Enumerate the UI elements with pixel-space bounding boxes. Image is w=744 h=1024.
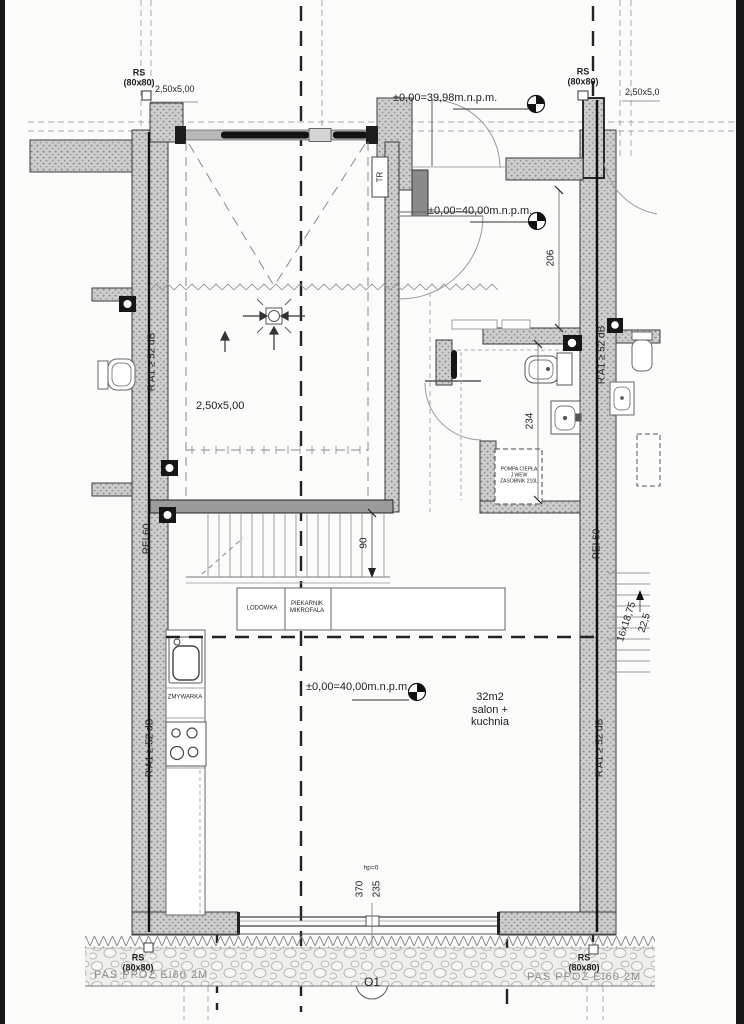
dim-stair-90: 90 xyxy=(358,537,370,548)
acoustic-wall-left-upper: R'A1 ≥ 52 dB xyxy=(146,333,158,392)
floor-drain-icon xyxy=(221,299,305,352)
garage-dim-label: 2,50x5,00 xyxy=(196,400,244,413)
fire-wall-right: REI 60 xyxy=(591,529,603,560)
fire-wall-left: REI 60 xyxy=(141,524,153,555)
acoustic-wall-left-lower: R'A1 ≥ 52 dB xyxy=(144,719,156,778)
rs-label-top-right: RS (80x80) xyxy=(567,67,598,88)
dim-bath-234: 234 xyxy=(524,413,536,430)
washbasin xyxy=(551,401,581,434)
elevation-hall: ±0,00=40,00m.n.p.m. xyxy=(428,205,532,218)
acoustic-wall-right-lower: R'A1 ≥ 52 dB xyxy=(594,719,606,778)
bathroom-door xyxy=(425,381,481,440)
towel-rail xyxy=(451,350,457,379)
entrance-door xyxy=(412,100,506,168)
garage-door xyxy=(175,126,378,144)
tr-label: TR xyxy=(375,172,384,183)
room-label-salon: 32m2 salon + kuchnia xyxy=(471,691,509,729)
oven-label: PIEKARNIK MIKROFALA xyxy=(290,601,324,615)
rs-label-top-left: RS (80x80) xyxy=(123,68,154,89)
heat-pump-label: POMPA CIEPŁA J.WEW ZASOBNIK 210L xyxy=(500,467,538,484)
hall-shelves xyxy=(452,320,530,329)
floor-plan: RS (80x80) 2,50x5,00 RS (80x80) 2,50x5,0… xyxy=(0,0,744,1024)
fire-strip-label-left: PAS PPOŻ EI60 2M xyxy=(94,969,208,982)
fridge-label: LODÓWKA xyxy=(247,606,278,613)
window-tag-o1: O1 xyxy=(364,976,380,990)
hp-zero-label: hp=0 xyxy=(364,864,379,871)
left-photo-border xyxy=(0,0,5,1024)
garage-parking-zone xyxy=(150,142,498,498)
dishwasher-label: ZMYWARKA xyxy=(168,695,202,702)
rs-marker-squares xyxy=(142,91,588,100)
module-dim-top-left: 2,50x5,00 xyxy=(155,84,195,94)
neighbor-left-toilet xyxy=(98,359,135,390)
module-dim-top-right: 2,50x5,00 xyxy=(625,87,659,97)
cooktop xyxy=(166,722,206,766)
fire-strip-label-right: PAS PPOŻ EI60 2M xyxy=(527,971,641,984)
elevation-salon: ±0,00=40,00m.n.p.m. xyxy=(306,681,410,694)
dim-window-370: 370 xyxy=(354,881,366,898)
acoustic-wall-right-upper: R'A1 ≥ 52 dB xyxy=(596,326,608,385)
toilet xyxy=(525,353,572,385)
kitchen-sink xyxy=(169,637,202,683)
party-walls xyxy=(30,98,660,935)
dim-window-235: 235 xyxy=(371,881,383,898)
elevation-entry: ±0,00=39,98m.n.p.m. xyxy=(393,92,497,105)
dim-hall-206: 206 xyxy=(545,250,557,267)
right-photo-border xyxy=(736,0,744,1024)
